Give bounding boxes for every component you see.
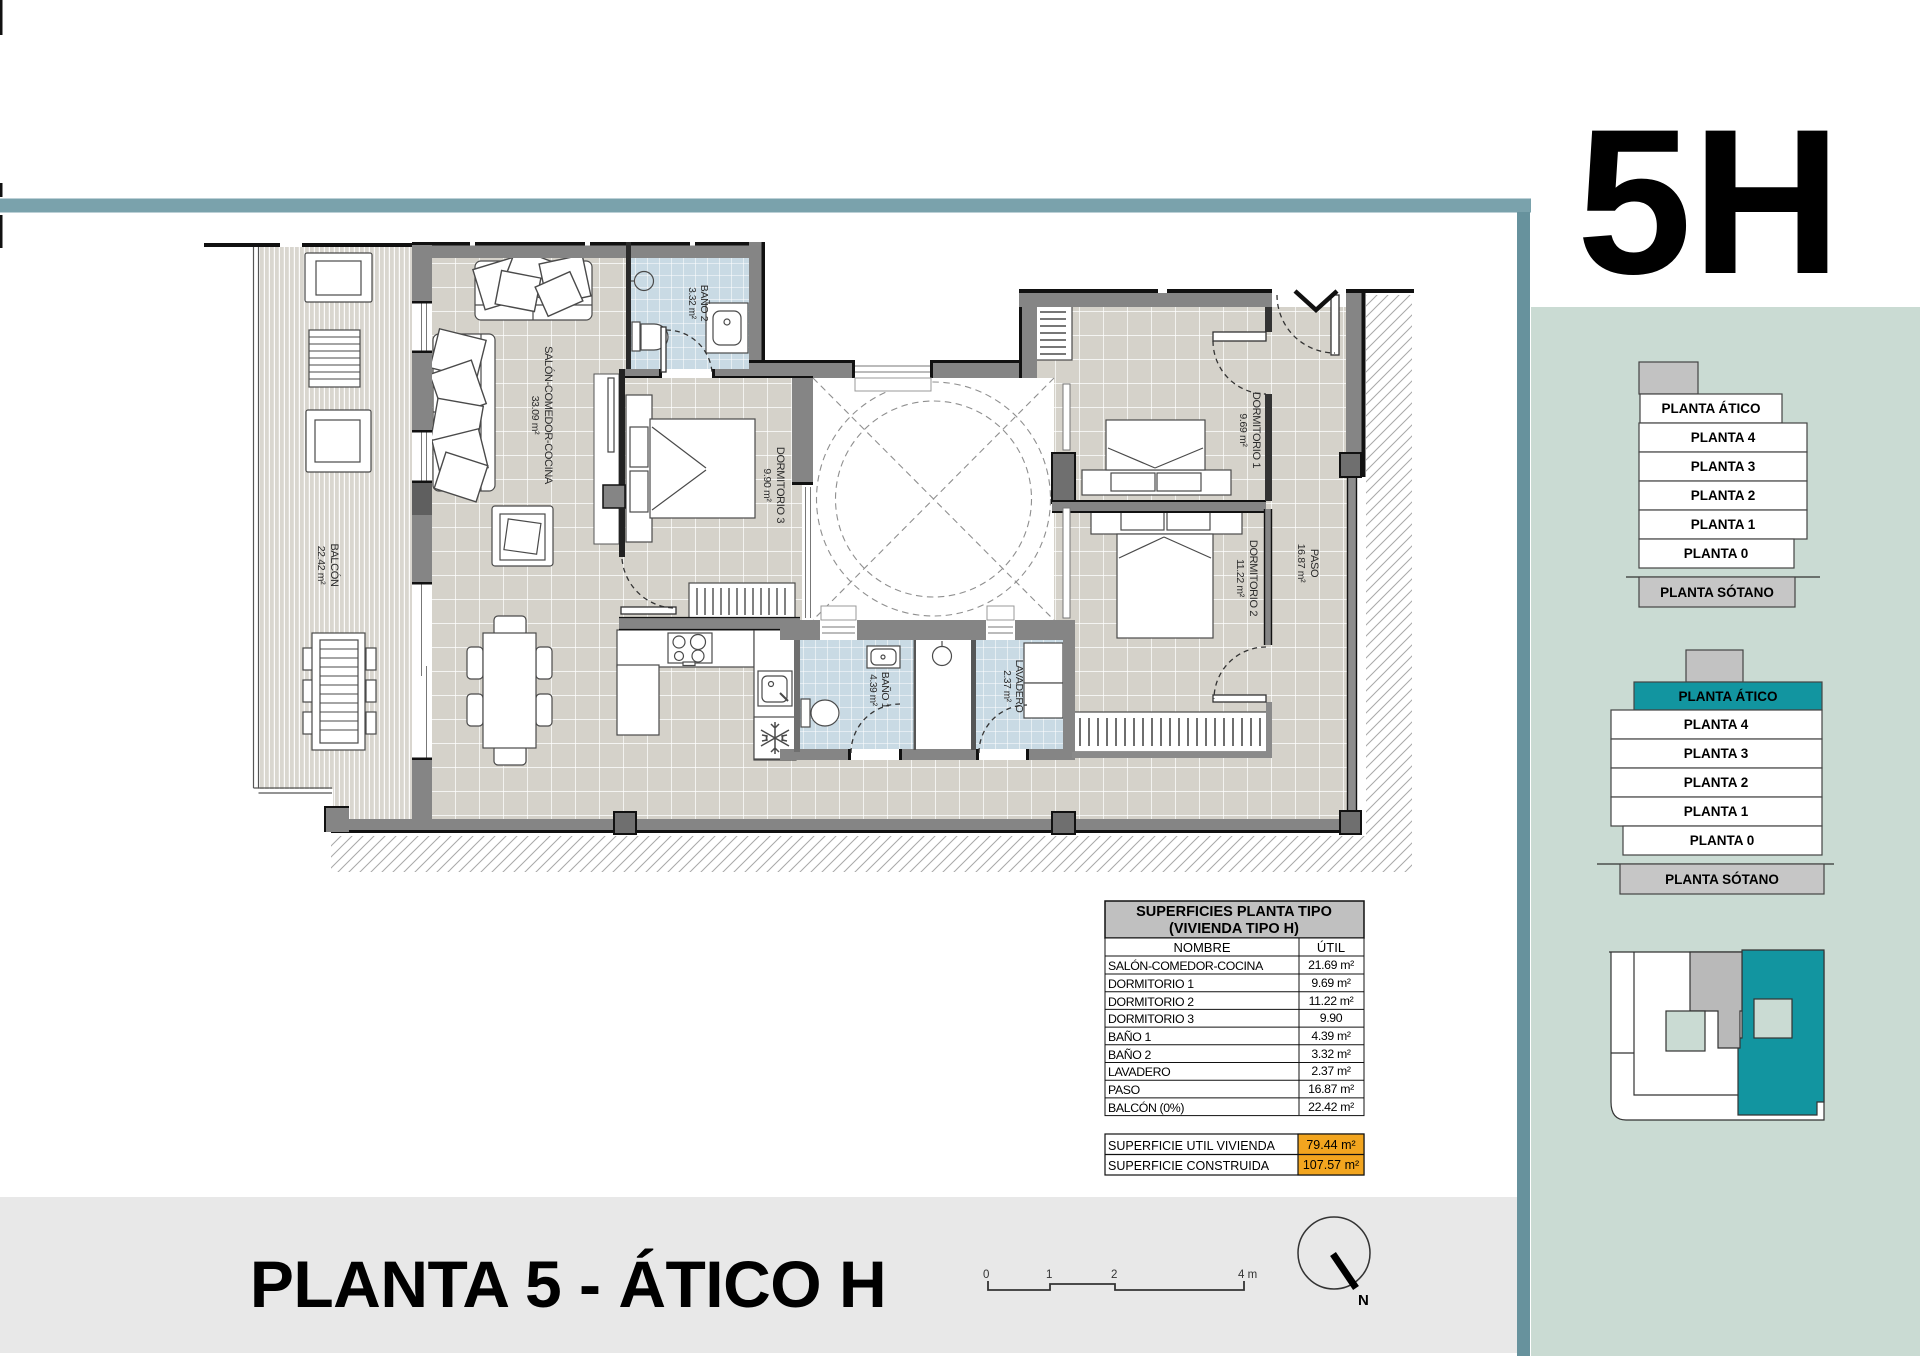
svg-text:5H: 5H <box>1577 86 1842 317</box>
svg-text:11.22 m²: 11.22 m² <box>1309 994 1354 1008</box>
svg-text:DORMITORIO 2: DORMITORIO 2 <box>1108 995 1194 1009</box>
svg-text:33.09 m²: 33.09 m² <box>529 396 541 435</box>
svg-text:9.69 m²: 9.69 m² <box>1311 976 1350 990</box>
svg-text:PASO: PASO <box>1108 1083 1140 1097</box>
svg-text:21.69 m²: 21.69 m² <box>1308 958 1354 972</box>
svg-text:PLANTA 2: PLANTA 2 <box>1684 775 1749 790</box>
svg-text:ÚTIL: ÚTIL <box>1317 940 1345 955</box>
svg-text:SALÓN-COMEDOR-COCINA: SALÓN-COMEDOR-COCINA <box>542 346 555 485</box>
svg-text:11.22 m²: 11.22 m² <box>1234 559 1246 598</box>
svg-text:LAVADERO: LAVADERO <box>1013 660 1025 713</box>
svg-text:DORMITORIO 3: DORMITORIO 3 <box>774 447 786 524</box>
svg-text:2.37 m²: 2.37 m² <box>1311 1064 1350 1078</box>
svg-text:PLANTA 1: PLANTA 1 <box>1684 804 1749 819</box>
svg-text:2.37 m²: 2.37 m² <box>1001 670 1012 702</box>
svg-text:BAÑO 1: BAÑO 1 <box>1108 1030 1152 1044</box>
svg-text:SUPERFICIES PLANTA TIPO: SUPERFICIES PLANTA TIPO <box>1136 904 1332 920</box>
svg-text:2: 2 <box>1111 1269 1117 1281</box>
svg-text:PLANTA ÁTICO: PLANTA ÁTICO <box>1679 689 1778 704</box>
svg-text:PLANTA 1: PLANTA 1 <box>1691 517 1756 532</box>
svg-text:PLANTA 2: PLANTA 2 <box>1691 488 1756 503</box>
svg-text:NOMBRE: NOMBRE <box>1173 940 1230 955</box>
svg-text:3.32 m²: 3.32 m² <box>686 287 697 319</box>
svg-text:DORMITORIO 3: DORMITORIO 3 <box>1108 1012 1194 1026</box>
svg-text:(VIVIENDA TIPO H): (VIVIENDA TIPO H) <box>1169 921 1299 937</box>
svg-text:DORMITORIO 1: DORMITORIO 1 <box>1250 392 1262 469</box>
svg-text:PLANTA 0: PLANTA 0 <box>1690 833 1755 848</box>
svg-text:SUPERFICIE CONSTRUIDA: SUPERFICIE CONSTRUIDA <box>1108 1159 1270 1173</box>
svg-text:BALCÓN: BALCÓN <box>328 543 341 587</box>
svg-text:BAÑO 2: BAÑO 2 <box>1108 1048 1152 1062</box>
svg-text:PLANTA 0: PLANTA 0 <box>1684 546 1749 561</box>
svg-text:PASO: PASO <box>1308 549 1320 578</box>
svg-text:PLANTA 5 - ÁTICO H: PLANTA 5 - ÁTICO H <box>250 1247 886 1321</box>
svg-text:DORMITORIO 2: DORMITORIO 2 <box>1247 540 1259 617</box>
svg-text:BAÑO 2: BAÑO 2 <box>698 285 711 322</box>
svg-text:4 m: 4 m <box>1238 1269 1257 1281</box>
svg-text:PLANTA SÓTANO: PLANTA SÓTANO <box>1665 872 1779 887</box>
svg-text:0: 0 <box>983 1269 989 1281</box>
svg-text:16.87 m²: 16.87 m² <box>1308 1082 1354 1096</box>
svg-text:PLANTA ÁTICO: PLANTA ÁTICO <box>1662 401 1761 416</box>
svg-text:DORMITORIO 1: DORMITORIO 1 <box>1108 977 1194 991</box>
svg-text:22.42 m²: 22.42 m² <box>315 546 327 585</box>
svg-text:BALCÓN (0%): BALCÓN (0%) <box>1108 1100 1184 1115</box>
svg-text:SALÓN-COMEDOR-COCINA: SALÓN-COMEDOR-COCINA <box>1108 958 1264 973</box>
svg-text:4.39 m²: 4.39 m² <box>1311 1029 1350 1043</box>
svg-text:PLANTA 3: PLANTA 3 <box>1691 459 1756 474</box>
svg-text:N: N <box>1358 1292 1369 1309</box>
svg-text:16.87 m²: 16.87 m² <box>1295 544 1307 583</box>
svg-text:1: 1 <box>1046 1269 1052 1281</box>
svg-text:3.32 m²: 3.32 m² <box>1311 1047 1350 1061</box>
svg-text:PLANTA 3: PLANTA 3 <box>1684 746 1749 761</box>
svg-text:SUPERFICIE UTIL VIVIENDA: SUPERFICIE UTIL VIVIENDA <box>1108 1139 1276 1153</box>
svg-text:LAVADERO: LAVADERO <box>1108 1065 1170 1079</box>
svg-text:PLANTA 4: PLANTA 4 <box>1691 430 1756 445</box>
svg-text:BAÑO 1: BAÑO 1 <box>879 672 892 709</box>
svg-text:9.69 m²: 9.69 m² <box>1237 413 1249 447</box>
svg-text:107.57 m²: 107.57 m² <box>1303 1158 1359 1172</box>
svg-text:79.44 m²: 79.44 m² <box>1306 1138 1355 1152</box>
svg-text:9.90: 9.90 <box>1320 1011 1343 1025</box>
svg-text:22.42 m²: 22.42 m² <box>1308 1100 1354 1114</box>
svg-text:PLANTA SÓTANO: PLANTA SÓTANO <box>1660 585 1774 600</box>
svg-text:PLANTA 4: PLANTA 4 <box>1684 717 1749 732</box>
svg-text:4.39 m²: 4.39 m² <box>867 674 878 706</box>
svg-text:9.90 m²: 9.90 m² <box>761 468 773 502</box>
